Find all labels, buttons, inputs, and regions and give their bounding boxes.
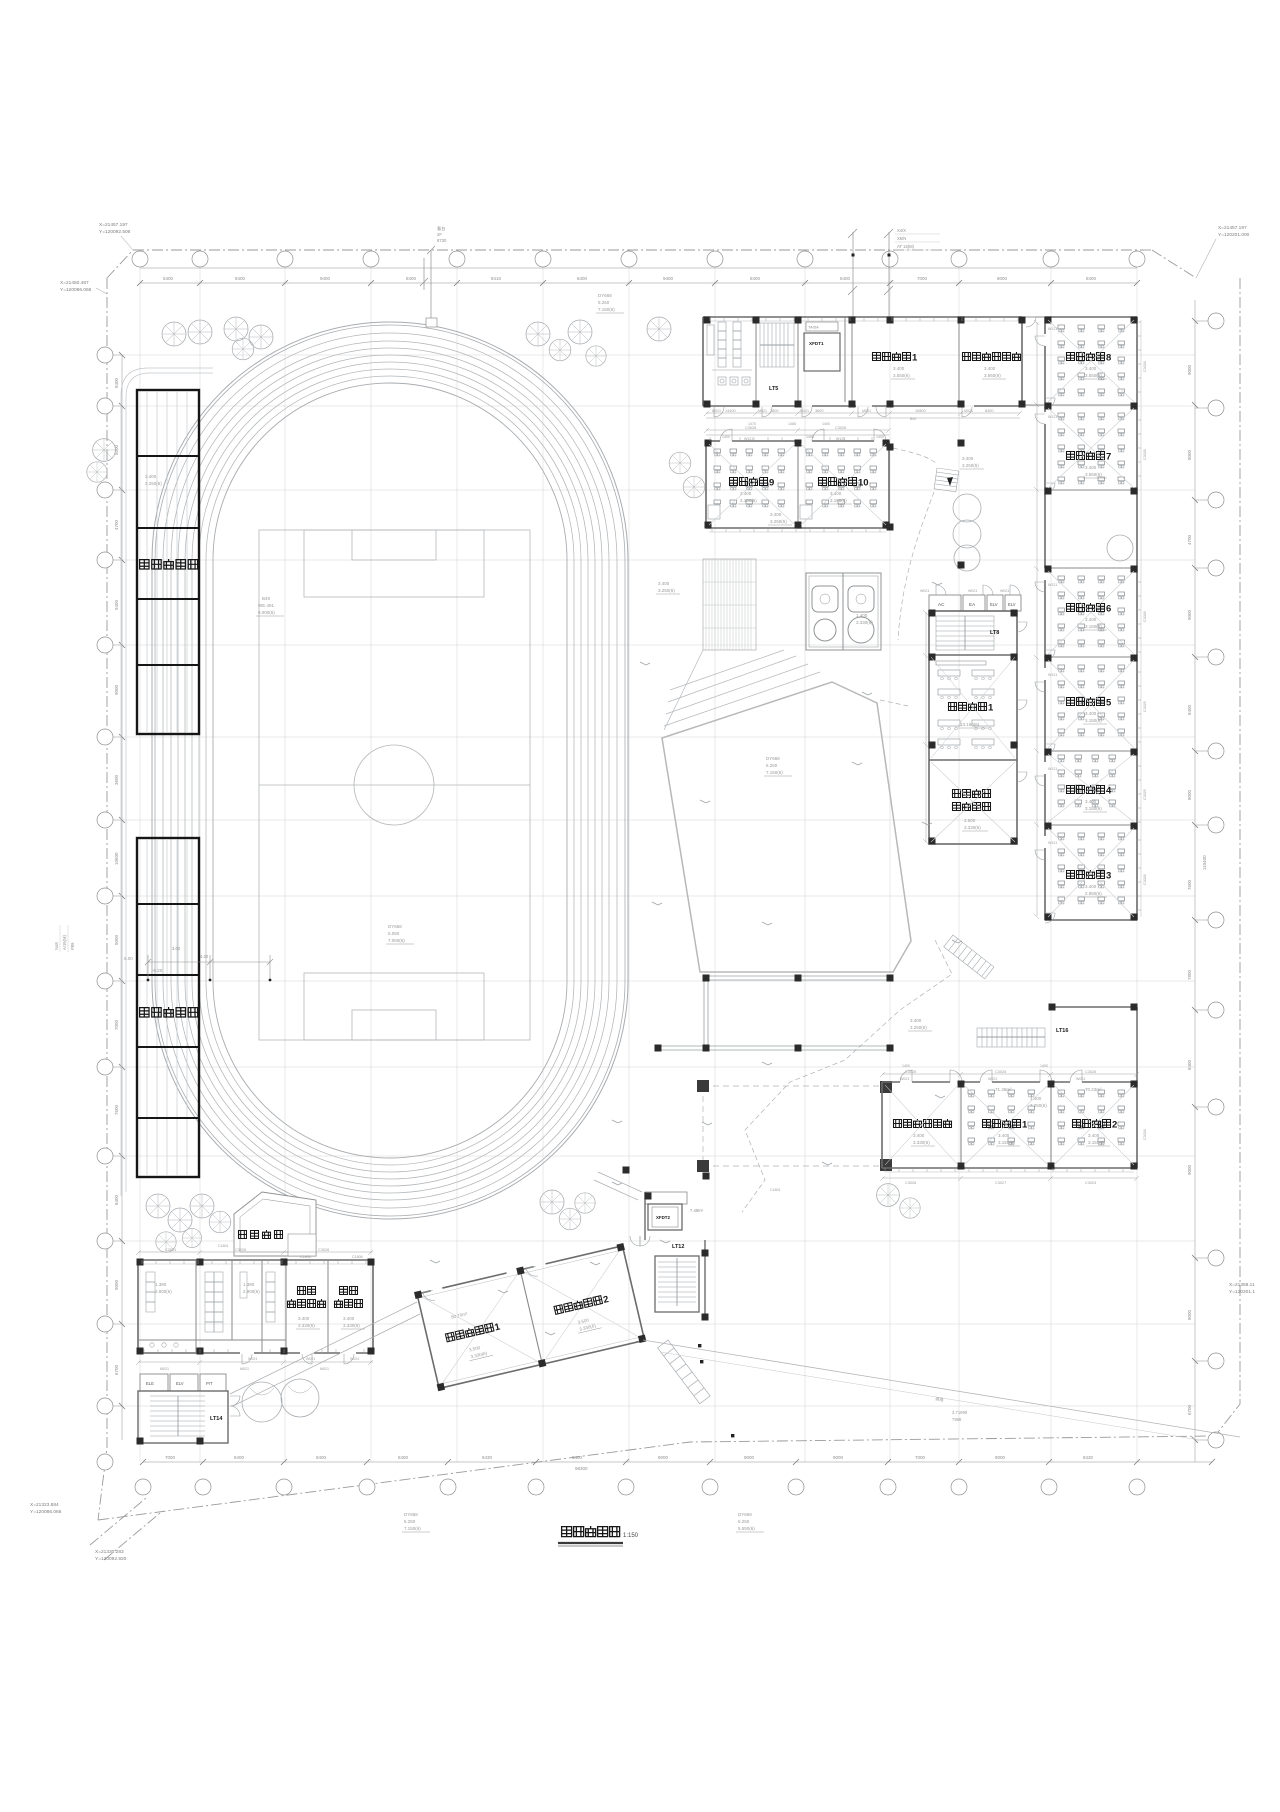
svg-text:LT5: LT5 [769, 386, 778, 392]
svg-text:3.400: 3.400 [1085, 799, 1097, 804]
svg-text:ELV: ELV [176, 1381, 184, 1386]
svg-text:7000: 7000 [114, 1019, 119, 1030]
svg-text:W121: W121 [1048, 767, 1057, 771]
svg-text:7.150(6): 7.150(6) [404, 1526, 421, 1531]
svg-text:8430: 8430 [1083, 1455, 1094, 1460]
svg-text:5: 5 [1106, 698, 1112, 709]
svg-text:8430: 8430 [482, 1455, 493, 1460]
svg-text:8400: 8400 [114, 377, 119, 388]
svg-text:8400: 8400 [750, 276, 761, 281]
svg-text:3: 3 [1106, 871, 1111, 882]
svg-text:8400: 8400 [234, 1455, 245, 1460]
svg-text:LT16: LT16 [1056, 1028, 1068, 1034]
svg-text:3600: 3600 [815, 409, 823, 413]
svg-text:3.400: 3.400 [740, 491, 752, 496]
svg-text:9000: 9000 [744, 1455, 755, 1460]
svg-text:7800: 7800 [1187, 969, 1192, 980]
svg-text:8: 8 [1106, 353, 1111, 364]
svg-text:3.400: 3.400 [984, 366, 996, 371]
svg-text:W021: W021 [900, 1077, 909, 1081]
svg-text:9000: 9000 [1187, 1164, 1192, 1175]
svg-text:W021: W021 [988, 1077, 997, 1081]
svg-text:7600: 7600 [1187, 879, 1192, 890]
svg-text:5.00: 5.00 [124, 956, 133, 961]
svg-text:8400: 8400 [577, 276, 588, 281]
svg-text:3.400: 3.400 [1088, 1133, 1100, 1138]
svg-text:C3026: C3026 [318, 1248, 329, 1252]
svg-text:8400: 8400 [1086, 276, 1097, 281]
svg-text:3.250(6): 3.250(6) [962, 463, 979, 468]
svg-text:7000: 7000 [165, 1455, 176, 1460]
svg-text:M021: M021 [964, 409, 973, 413]
svg-text:8000: 8000 [1187, 449, 1192, 460]
svg-text:Y=120092.920: Y=120092.920 [95, 1556, 127, 1562]
svg-text:No8: No8 [54, 942, 59, 950]
svg-text:7000: 7000 [915, 1455, 926, 1460]
svg-text:W021: W021 [920, 589, 929, 593]
svg-text:7.150(6): 7.150(6) [766, 770, 783, 775]
svg-text:3.400: 3.400 [658, 581, 670, 586]
svg-text:2.950(6): 2.950(6) [1085, 891, 1102, 896]
svg-text:M021: M021 [240, 1367, 249, 1371]
svg-text:3.400: 3.400 [145, 474, 157, 479]
svg-text:W121: W121 [836, 437, 845, 441]
svg-text:3.500: 3.500 [964, 818, 976, 823]
svg-text:C3026: C3026 [1143, 611, 1147, 622]
svg-text:看台: 看台 [437, 225, 445, 232]
svg-text:5.250: 5.250 [404, 1519, 416, 1524]
svg-text:M021: M021 [320, 1367, 329, 1371]
svg-text:C3025: C3025 [1143, 701, 1147, 712]
svg-text:DY668: DY668 [766, 756, 780, 761]
svg-text:98300: 98300 [575, 1466, 588, 1471]
svg-text:M021: M021 [800, 409, 809, 413]
svg-text:C1801: C1801 [770, 1188, 781, 1192]
svg-text:X=21358.11: X=21358.11 [1229, 1282, 1255, 1288]
svg-text:9000: 9000 [114, 684, 119, 695]
svg-text:3.71999: 3.71999 [952, 1410, 968, 1415]
svg-text:3.00: 3.00 [172, 946, 181, 951]
svg-text:3.400: 3.400 [962, 456, 974, 461]
svg-text:M021: M021 [758, 409, 767, 413]
svg-text:7: 7 [1106, 452, 1111, 463]
svg-text:8400: 8400 [114, 1194, 119, 1205]
svg-text:8000: 8000 [1187, 1309, 1192, 1320]
svg-text:9000: 9000 [658, 1455, 669, 1460]
svg-text:5400: 5400 [163, 276, 174, 281]
svg-text:Y=120086.066: Y=120086.066 [30, 1509, 62, 1515]
svg-text:8400: 8400 [1187, 1059, 1192, 1070]
svg-text:9.000(6): 9.000(6) [258, 610, 275, 615]
svg-text:8400: 8400 [1187, 704, 1192, 715]
svg-text:W121: W121 [1048, 415, 1057, 419]
svg-text:3.330(6): 3.330(6) [343, 1323, 360, 1328]
svg-text:3.400: 3.400 [1085, 711, 1097, 716]
svg-text:3.250(6): 3.250(6) [770, 519, 787, 524]
svg-text:3.400: 3.400 [913, 1133, 925, 1138]
svg-text:W121: W121 [744, 437, 753, 441]
svg-text:1: 1 [1022, 1120, 1028, 1131]
svg-text:B92: B92 [910, 417, 916, 421]
svg-text:ELV: ELV [990, 602, 998, 607]
svg-text:M021: M021 [862, 409, 871, 413]
svg-text:M021: M021 [160, 1367, 169, 1371]
svg-text:8000: 8000 [997, 276, 1008, 281]
svg-text:X4/X: X4/X [897, 228, 906, 233]
svg-text:1400: 1400 [722, 435, 730, 439]
svg-text:3.330(6): 3.330(6) [856, 620, 873, 625]
svg-text:7.150(6): 7.150(6) [598, 307, 615, 312]
svg-text:6700: 6700 [1187, 1404, 1192, 1415]
svg-text:5.550(6): 5.550(6) [738, 1526, 755, 1531]
svg-text:14400: 14400 [725, 409, 736, 413]
svg-text:9000: 9000 [1187, 609, 1192, 620]
svg-text:9000: 9000 [833, 1455, 844, 1460]
svg-text:1400: 1400 [822, 422, 830, 426]
svg-text:W021: W021 [248, 1357, 257, 1361]
svg-text:8400: 8400 [235, 276, 246, 281]
svg-text:3.400: 3.400 [1085, 465, 1097, 470]
svg-text:3.330(6): 3.330(6) [913, 1140, 930, 1145]
svg-text:C1806: C1806 [352, 1255, 363, 1259]
svg-text:3.400: 3.400 [1085, 617, 1097, 622]
svg-text:X=21323.884: X=21323.884 [30, 1502, 59, 1508]
svg-text:W021: W021 [350, 1357, 359, 1361]
svg-text:1.400: 1.400 [856, 613, 868, 618]
svg-text:3.150(6): 3.150(6) [830, 498, 847, 503]
svg-text:C3027: C3027 [995, 1181, 1006, 1185]
svg-text:3.400: 3.400 [343, 1316, 355, 1321]
svg-text:ELV: ELV [1008, 602, 1016, 607]
svg-text:4.20: 4.20 [200, 954, 209, 959]
svg-text:3.150(6): 3.150(6) [740, 498, 757, 503]
svg-text:1400: 1400 [902, 1064, 910, 1068]
svg-text:5.250: 5.250 [766, 763, 778, 768]
svg-text:8400: 8400 [985, 409, 993, 413]
svg-text:C3026: C3026 [1143, 1129, 1147, 1140]
svg-text:1400: 1400 [876, 435, 884, 439]
svg-text:3.400: 3.400 [998, 1133, 1010, 1138]
svg-text:W021: W021 [1076, 1077, 1085, 1081]
svg-text:5.250: 5.250 [598, 300, 610, 305]
svg-text:W121: W121 [1048, 327, 1057, 331]
svg-text:10: 10 [858, 478, 869, 489]
svg-text:7000: 7000 [917, 276, 928, 281]
svg-text:C3026: C3026 [905, 1181, 916, 1185]
svg-text:7968: 7968 [952, 1417, 962, 1422]
svg-text:W021: W021 [306, 1357, 315, 1361]
svg-text:4700: 4700 [114, 519, 119, 530]
svg-text:DY668: DY668 [388, 924, 402, 929]
svg-text:4: 4 [1106, 786, 1112, 797]
svg-text:3.400: 3.400 [893, 366, 905, 371]
svg-text:8730: 8730 [437, 238, 447, 243]
svg-text:TA/5A: TA/5A [808, 325, 819, 330]
svg-text:3.550(6): 3.550(6) [1085, 472, 1102, 477]
svg-text:XFDT1: XFDT1 [809, 341, 824, 346]
svg-text:WE.491: WE.491 [258, 603, 275, 608]
svg-text:Y=120201.1: Y=120201.1 [1229, 1289, 1255, 1295]
svg-text:3.330(6): 3.330(6) [964, 825, 981, 830]
svg-text:3.400: 3.400 [770, 512, 782, 517]
svg-text:5.050: 5.050 [388, 931, 400, 936]
svg-text:C3021: C3021 [165, 1248, 176, 1252]
svg-text:C3025: C3025 [905, 1070, 916, 1074]
svg-text:C1801: C1801 [218, 1244, 229, 1248]
svg-text:C3025: C3025 [1143, 789, 1147, 800]
svg-text:3600: 3600 [114, 774, 119, 785]
svg-text:X=21457.197: X=21457.197 [1218, 225, 1247, 231]
svg-text:4700: 4700 [1187, 534, 1192, 545]
svg-text:5.250: 5.250 [738, 1519, 750, 1524]
svg-text:8410: 8410 [491, 276, 502, 281]
svg-text:9400: 9400 [663, 276, 674, 281]
svg-text:3.150(6): 3.150(6) [1088, 1140, 1105, 1145]
svg-text:8000: 8000 [1187, 789, 1192, 800]
svg-text:C3026: C3026 [1143, 361, 1147, 372]
svg-text:1.380: 1.380 [155, 1282, 167, 1287]
svg-text:Y=120092.506: Y=120092.506 [99, 229, 131, 235]
svg-text:C3025: C3025 [995, 1070, 1006, 1074]
svg-text:C3024: C3024 [1085, 1181, 1096, 1185]
svg-text:6: 6 [1106, 604, 1111, 615]
svg-text:2.800(6): 2.800(6) [155, 1289, 172, 1294]
svg-text:M021: M021 [712, 409, 721, 413]
svg-text:9000: 9000 [995, 1455, 1006, 1460]
svg-text:3.250(6): 3.250(6) [910, 1025, 927, 1030]
svg-text:1: 1 [912, 353, 918, 364]
svg-text:10600: 10600 [114, 852, 119, 865]
svg-text:1800: 1800 [770, 409, 778, 413]
svg-text:EA: EA [969, 602, 976, 607]
svg-text:3.550(6): 3.550(6) [1085, 373, 1102, 378]
svg-text:2.900(6): 2.900(6) [243, 1289, 260, 1294]
svg-text:2: 2 [1112, 1120, 1117, 1131]
svg-text:LT14: LT14 [210, 1416, 223, 1422]
svg-text:5000: 5000 [114, 934, 119, 945]
svg-text:2F: 2F [437, 232, 442, 237]
svg-text:3.400: 3.400 [1085, 884, 1097, 889]
svg-text:AC: AC [938, 602, 945, 607]
svg-text:8400: 8400 [398, 1455, 409, 1460]
svg-text:3.150(6): 3.150(6) [1085, 624, 1102, 629]
svg-text:DY668: DY668 [404, 1512, 418, 1517]
svg-text:B49: B49 [262, 596, 271, 601]
svg-text:C1806: C1806 [300, 1255, 311, 1259]
svg-text:1470: 1470 [748, 422, 756, 426]
svg-text:LT8: LT8 [990, 630, 999, 636]
svg-text:3.400: 3.400 [910, 1018, 922, 1023]
svg-text:X=21330.283: X=21330.283 [95, 1549, 124, 1555]
svg-text:1400: 1400 [1040, 1064, 1048, 1068]
svg-text:3.250(6): 3.250(6) [658, 588, 675, 593]
svg-text:1400: 1400 [806, 435, 814, 439]
svg-text:-0.20: -0.20 [152, 968, 163, 973]
svg-text:3.400: 3.400 [1085, 366, 1097, 371]
svg-text:9000: 9000 [114, 1279, 119, 1290]
svg-text:3.400: 3.400 [298, 1316, 310, 1321]
svg-text:3.550(6): 3.550(6) [893, 373, 910, 378]
svg-text:Y=120201.000: Y=120201.000 [1218, 232, 1250, 238]
svg-text:C3026: C3026 [1143, 449, 1147, 460]
svg-text:DY668: DY668 [738, 1512, 752, 1517]
svg-text:3.330(6): 3.330(6) [298, 1323, 315, 1328]
svg-text:9400: 9400 [320, 276, 331, 281]
svg-text:W021: W021 [968, 589, 977, 593]
svg-text:W021: W021 [1000, 589, 1009, 593]
svg-text:10800: 10800 [915, 409, 926, 413]
svg-text:7.49m²: 7.49m² [690, 1208, 704, 1213]
svg-text:9000: 9000 [1187, 364, 1192, 375]
svg-text:1480: 1480 [788, 422, 796, 426]
svg-text:7.050(6): 7.050(6) [388, 938, 405, 943]
svg-text:W121: W121 [1048, 841, 1057, 845]
svg-text:C3026: C3026 [835, 426, 846, 430]
svg-text:3.150(6): 3.150(6) [1085, 806, 1102, 811]
svg-text:70.23m²: 70.23m² [1085, 1087, 1102, 1092]
svg-text:X5/N: X5/N [897, 236, 906, 241]
svg-text:1.380: 1.380 [243, 1282, 255, 1287]
svg-text:W121: W121 [1048, 673, 1057, 677]
svg-text:110400: 110400 [1202, 855, 1207, 870]
svg-text:AT 15(M): AT 15(M) [897, 244, 915, 249]
svg-text:C3026: C3026 [1143, 874, 1147, 885]
svg-text:9400: 9400 [114, 599, 119, 610]
svg-text:Y=120086.066: Y=120086.066 [60, 287, 92, 293]
svg-text:A/19(M): A/19(M) [62, 935, 67, 950]
svg-text:8400: 8400 [840, 276, 851, 281]
svg-text:XFDT2: XFDT2 [656, 1215, 670, 1220]
svg-text:P89: P89 [70, 942, 75, 950]
svg-text:PIT: PIT [206, 1381, 213, 1386]
svg-text:C3026: C3026 [1085, 1070, 1096, 1074]
svg-text:7600: 7600 [114, 1104, 119, 1115]
svg-text:13.180(6): 13.180(6) [960, 722, 980, 727]
svg-text:71.36m²: 71.36m² [995, 1087, 1012, 1092]
svg-text:LT12: LT12 [672, 1244, 684, 1250]
svg-text:3.250(6): 3.250(6) [145, 481, 162, 486]
svg-text:X=21457.197: X=21457.197 [99, 222, 128, 228]
svg-text:ELE: ELE [146, 1381, 154, 1386]
svg-text:8400: 8400 [316, 1455, 327, 1460]
svg-text:3.150(6): 3.150(6) [998, 1140, 1015, 1145]
svg-text:1: 1 [988, 703, 994, 714]
svg-text:3.150(6): 3.150(6) [1085, 718, 1102, 723]
svg-text:W121: W121 [1048, 583, 1057, 587]
svg-text:X=21450.487: X=21450.487 [60, 280, 89, 286]
svg-text:DY668: DY668 [598, 293, 612, 298]
svg-text:3.550(6): 3.550(6) [984, 373, 1001, 378]
svg-text:1:150: 1:150 [623, 1533, 639, 1539]
svg-text:C3026: C3026 [745, 426, 756, 430]
svg-text:6700: 6700 [114, 1364, 119, 1375]
svg-text:C3026: C3026 [235, 1248, 246, 1252]
svg-text:8400: 8400 [406, 276, 417, 281]
svg-text:9: 9 [769, 478, 774, 489]
svg-text:8400: 8400 [572, 1455, 583, 1460]
